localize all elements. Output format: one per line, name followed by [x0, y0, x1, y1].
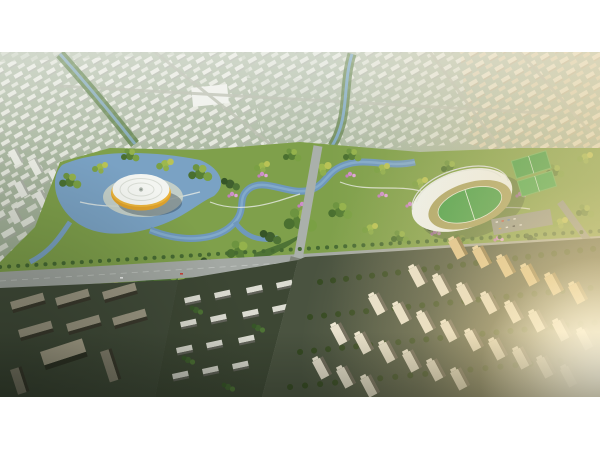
aerial-render-svg: architectural-aerial-rendering: [0, 52, 600, 397]
letterbox-bottom: [0, 397, 600, 450]
letterbox-top: [0, 0, 600, 52]
aerial-render-image: architectural-aerial-rendering: [0, 52, 600, 397]
left-shadow: [0, 52, 600, 397]
screenshot-canvas: architectural-aerial-rendering: [0, 0, 600, 450]
